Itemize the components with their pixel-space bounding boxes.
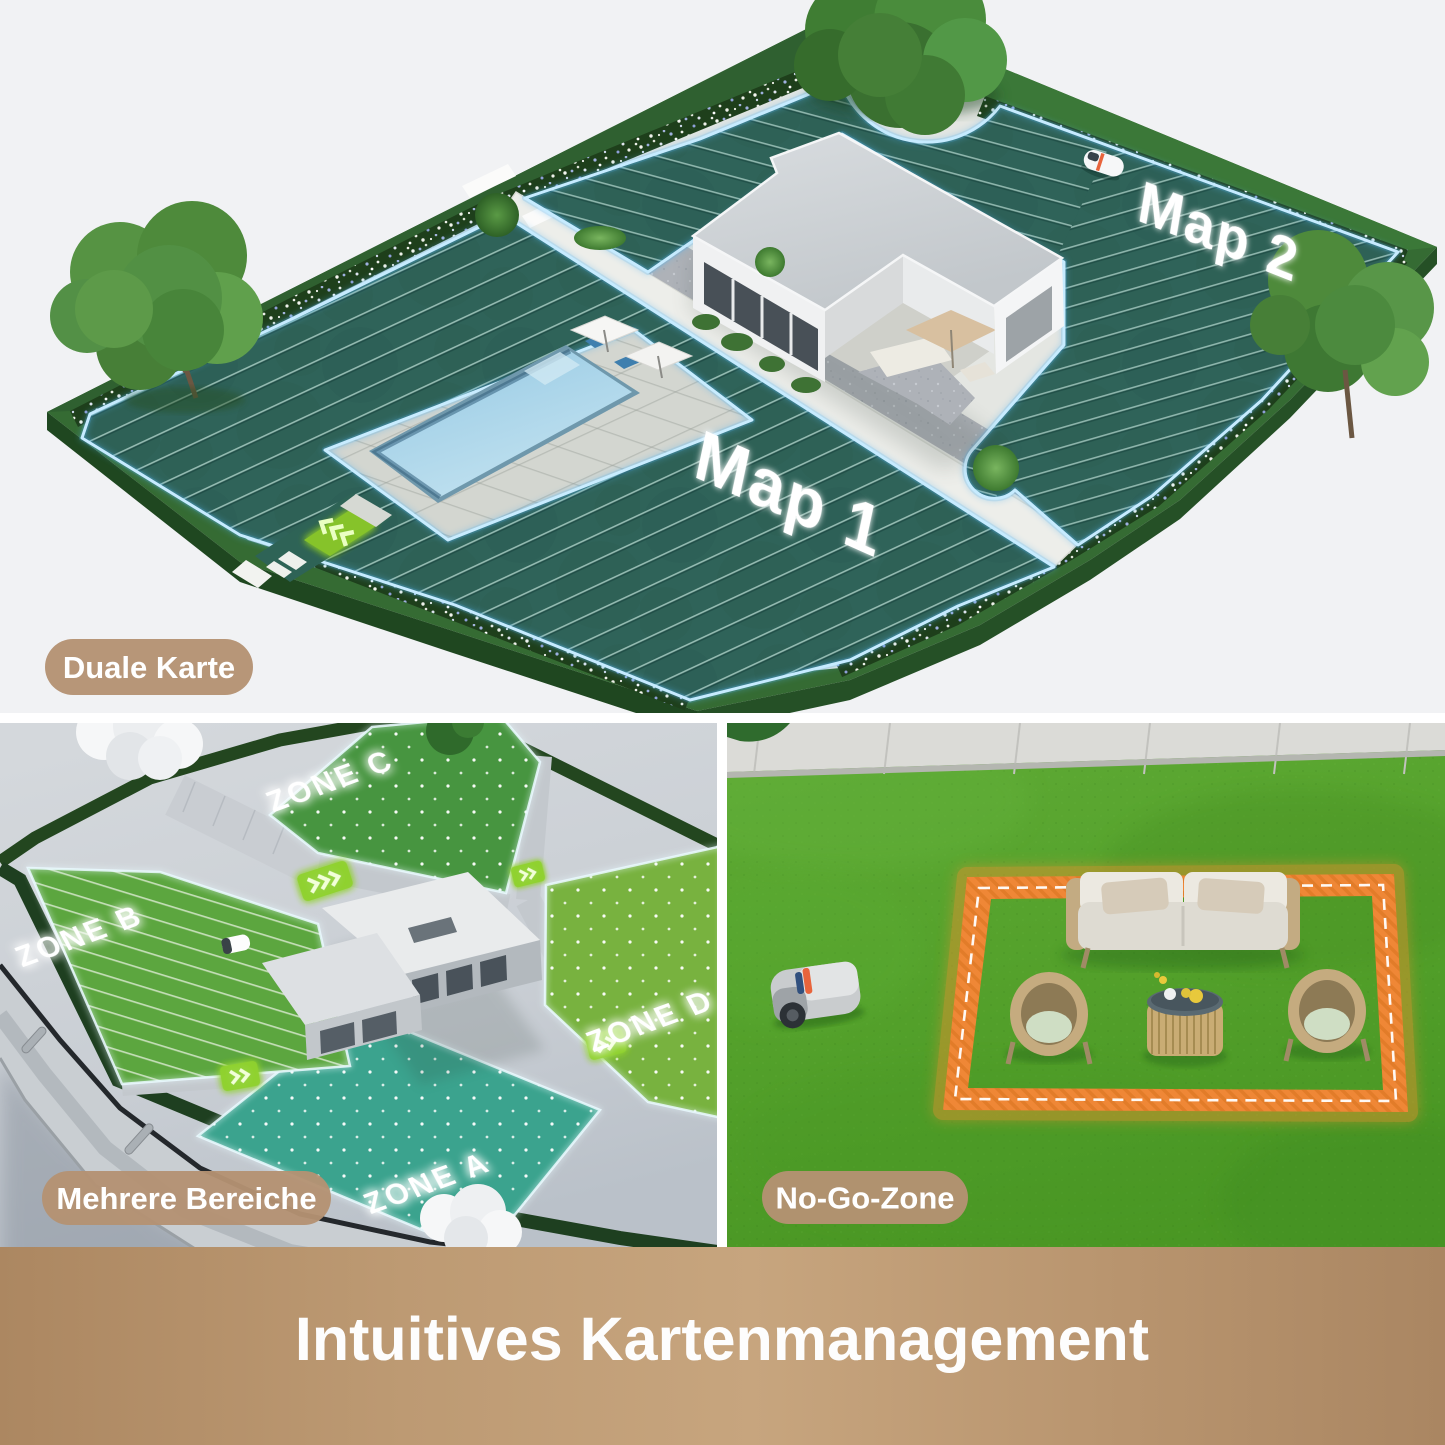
- svg-text:Duale Karte: Duale Karte: [63, 650, 235, 685]
- svg-text:Intuitives Kartenmanagement: Intuitives Kartenmanagement: [295, 1305, 1149, 1373]
- svg-text:No-Go-Zone: No-Go-Zone: [775, 1181, 954, 1216]
- svg-text:Mehrere Bereiche: Mehrere Bereiche: [56, 1181, 316, 1216]
